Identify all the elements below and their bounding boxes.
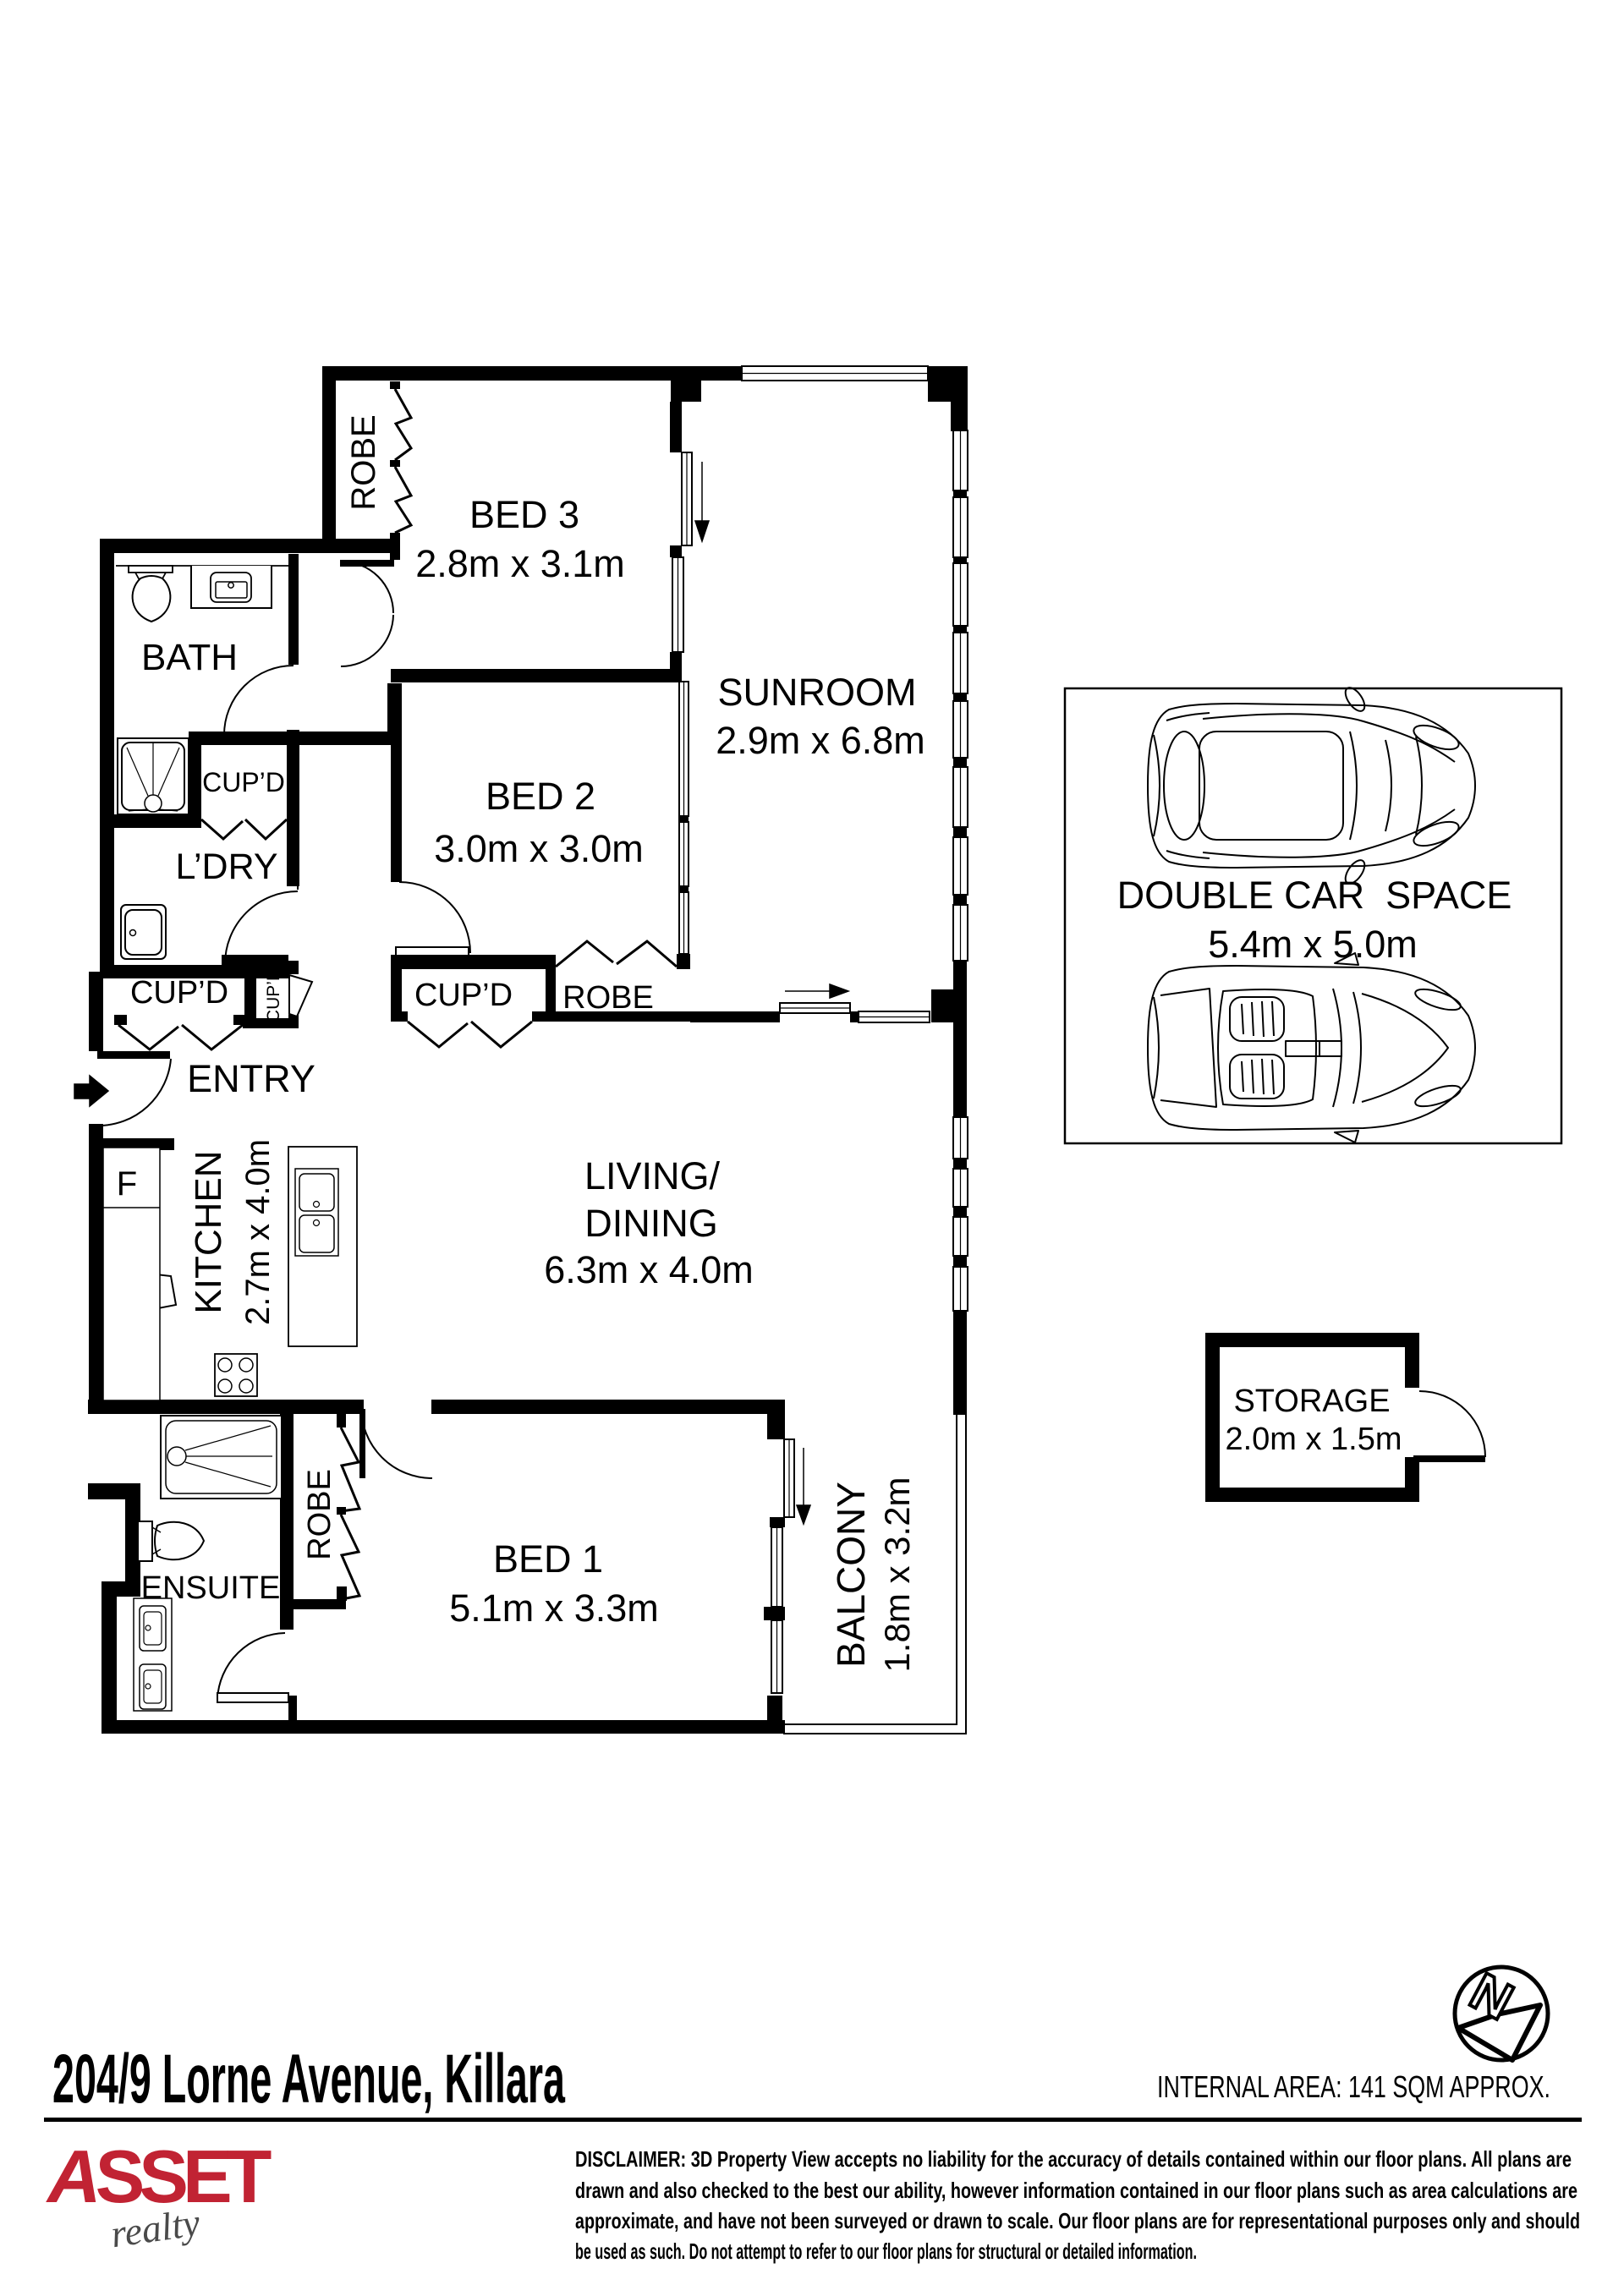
svg-text:BATH: BATH: [141, 637, 238, 678]
svg-text:ENTRY: ENTRY: [187, 1057, 315, 1100]
svg-text:2.0m x 1.5m: 2.0m x 1.5m: [1225, 1422, 1402, 1457]
svg-text:BED 2: BED 2: [486, 775, 595, 818]
svg-text:CUP’D: CUP’D: [264, 968, 283, 1022]
svg-text:BALCONY: BALCONY: [829, 1482, 873, 1668]
svg-text:DINING: DINING: [584, 1202, 718, 1245]
svg-text:F: F: [117, 1165, 137, 1203]
svg-text:INTERNAL AREA: 141 SQM APPROX.: INTERNAL AREA: 141 SQM APPROX.: [1157, 2069, 1550, 2104]
svg-text:6.3m x 4.0m: 6.3m x 4.0m: [544, 1248, 754, 1291]
svg-text:2.9m x 6.8m: 2.9m x 6.8m: [716, 719, 925, 762]
svg-text:ROBE: ROBE: [345, 414, 382, 510]
svg-text:2.8m x 3.1m: 2.8m x 3.1m: [415, 542, 625, 585]
svg-text:1.8m x 3.2m: 1.8m x 3.2m: [877, 1477, 917, 1672]
svg-text:5.4m x 5.0m: 5.4m x 5.0m: [1208, 923, 1418, 966]
svg-text:DOUBLE CAR SPACE: DOUBLE CAR SPACE: [1117, 874, 1512, 917]
svg-text:BED 3: BED 3: [469, 493, 579, 536]
svg-text:204/9 Lorne Avenue, Killara: 204/9 Lorne Avenue, Killara: [52, 2041, 566, 2118]
svg-text:SUNROOM: SUNROOM: [718, 671, 917, 714]
svg-text:DISCLAIMER: 3D Property View a: DISCLAIMER: 3D Property View accepts no …: [575, 2146, 1572, 2172]
svg-text:ENSUITE: ENSUITE: [141, 1570, 281, 1606]
svg-text:3.0m x 3.0m: 3.0m x 3.0m: [434, 827, 644, 870]
svg-text:KITCHEN: KITCHEN: [188, 1150, 229, 1313]
svg-text:be used as such. Do not attemp: be used as such. Do not attempt to refer…: [575, 2238, 1197, 2264]
svg-text:ROBE: ROBE: [302, 1469, 337, 1560]
svg-text:BED 1: BED 1: [493, 1537, 603, 1581]
svg-text:CUP’D: CUP’D: [414, 978, 513, 1013]
svg-text:5.1m x 3.3m: 5.1m x 3.3m: [449, 1586, 659, 1630]
svg-text:ROBE: ROBE: [562, 980, 654, 1016]
svg-text:drawn and also checked to the: drawn and also checked to the best our a…: [575, 2178, 1577, 2203]
svg-text:CUP’D: CUP’D: [130, 975, 228, 1011]
svg-text:approximate, and have not been: approximate, and have not been surveyed …: [575, 2208, 1580, 2233]
svg-text:LIVING/: LIVING/: [584, 1154, 721, 1197]
svg-text:STORAGE: STORAGE: [1233, 1384, 1390, 1419]
svg-text:CUP’D: CUP’D: [202, 767, 285, 797]
svg-text:2.7m x 4.0m: 2.7m x 4.0m: [239, 1139, 277, 1325]
svg-text:L’DRY: L’DRY: [175, 847, 277, 887]
